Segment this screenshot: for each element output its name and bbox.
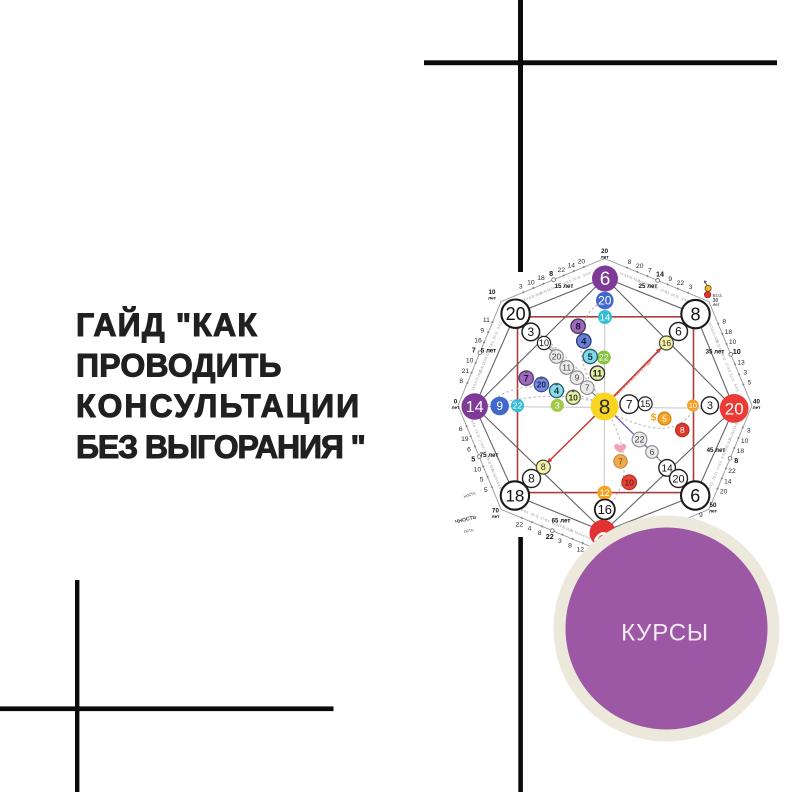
svg-text:22-11: 22-11 — [712, 471, 719, 480]
svg-text:ЧНОСТЬ: ЧНОСТЬ — [454, 514, 477, 525]
svg-text:10: 10 — [741, 438, 749, 445]
svg-text:50: 50 — [710, 502, 717, 509]
svg-text:(5-3) 16,5: (5-3) 16,5 — [478, 358, 487, 373]
svg-text:20: 20 — [636, 263, 644, 270]
svg-text:8: 8 — [599, 396, 611, 419]
svg-text:8: 8 — [734, 456, 738, 465]
svg-text:0: 0 — [454, 399, 458, 406]
svg-text:лет: лет — [709, 510, 718, 515]
svg-text:14: 14 — [724, 478, 732, 485]
svg-text:7: 7 — [585, 383, 590, 393]
svg-text:7: 7 — [524, 373, 529, 384]
svg-text:10: 10 — [733, 347, 741, 356]
svg-text:ость: ость — [464, 528, 475, 535]
svg-text:18: 18 — [505, 486, 524, 505]
svg-text:3: 3 — [747, 428, 751, 435]
svg-text:9-4,5: 9-4,5 — [496, 321, 503, 330]
svg-text:3: 3 — [519, 284, 523, 291]
svg-text:КОНСУЛЬТАЦИИ: КОНСУЛЬТАЦИИ — [76, 388, 361, 424]
svg-text:17-8,5: 17-8,5 — [715, 460, 722, 471]
svg-text:22: 22 — [546, 532, 554, 541]
svg-text:3: 3 — [527, 325, 534, 339]
svg-text:8: 8 — [568, 542, 572, 549]
svg-text:45 лет: 45 лет — [707, 447, 726, 454]
svg-text:20: 20 — [672, 473, 684, 485]
svg-text:11: 11 — [562, 363, 571, 373]
svg-text:лет: лет — [753, 406, 762, 411]
svg-text:6: 6 — [690, 486, 700, 506]
svg-text:17-8,5: 17-8,5 — [660, 288, 671, 295]
svg-text:3: 3 — [558, 538, 562, 545]
svg-text:6: 6 — [459, 426, 463, 433]
svg-text:22-11: 22-11 — [474, 429, 481, 438]
svg-text:3: 3 — [555, 400, 560, 410]
svg-text:9: 9 — [575, 373, 580, 383]
svg-text:22: 22 — [634, 435, 644, 445]
svg-text:20: 20 — [725, 399, 744, 418]
svg-text:ность: ность — [463, 491, 477, 500]
svg-text:18: 18 — [737, 448, 745, 455]
svg-text:6: 6 — [600, 269, 611, 290]
svg-text:ГАЙД "КАК: ГАЙД "КАК — [76, 307, 258, 343]
svg-text:9: 9 — [480, 327, 484, 334]
svg-text:4: 4 — [528, 526, 532, 533]
svg-text:70: 70 — [492, 508, 499, 515]
svg-text:лет: лет — [492, 515, 501, 520]
svg-text:75 лет: 75 лет — [480, 452, 499, 459]
svg-text:11: 11 — [483, 317, 490, 324]
svg-text:9-4,5: 9-4,5 — [733, 383, 740, 392]
svg-text:КУРСЫ: КУРСЫ — [621, 620, 709, 647]
svg-text:14-3,5: 14-3,5 — [580, 533, 591, 540]
svg-text:16: 16 — [474, 337, 482, 344]
svg-text:20: 20 — [506, 304, 526, 324]
svg-text:22-11: 22-11 — [530, 512, 539, 519]
svg-text:8: 8 — [722, 319, 726, 326]
svg-text:6: 6 — [675, 325, 682, 339]
svg-text:14: 14 — [656, 270, 664, 279]
svg-text:12: 12 — [600, 488, 610, 498]
svg-text:22: 22 — [557, 267, 565, 274]
svg-text:8: 8 — [549, 269, 553, 278]
svg-text:16: 16 — [662, 338, 672, 348]
svg-text:8: 8 — [538, 530, 542, 537]
svg-text:10: 10 — [624, 477, 634, 487]
svg-text:16: 16 — [598, 502, 612, 517]
svg-text:14: 14 — [466, 399, 484, 416]
svg-text:17-8,5: 17-8,5 — [540, 516, 551, 523]
svg-text:19: 19 — [461, 436, 469, 443]
svg-text:БЕЗ ВЫГОРАНИЯ ": БЕЗ ВЫГОРАНИЯ " — [76, 429, 365, 465]
svg-text:22-11: 22-11 — [492, 331, 499, 340]
svg-text:10: 10 — [466, 358, 474, 365]
svg-text:35 лет: 35 лет — [706, 349, 725, 356]
svg-text:25 лет: 25 лет — [639, 283, 658, 290]
svg-text:ПРОВОДИТЬ: ПРОВОДИТЬ — [76, 348, 282, 384]
svg-text:лет: лет — [601, 256, 610, 261]
svg-text:10: 10 — [689, 401, 697, 410]
svg-text:8: 8 — [575, 322, 580, 333]
svg-text:20: 20 — [578, 258, 586, 265]
svg-text:3: 3 — [689, 284, 693, 291]
svg-text:9-4,5: 9-4,5 — [583, 271, 592, 278]
svg-text:8: 8 — [528, 472, 535, 486]
svg-text:20: 20 — [601, 248, 608, 255]
svg-text:7: 7 — [472, 346, 476, 355]
svg-text:20: 20 — [552, 352, 562, 362]
svg-text:18: 18 — [537, 275, 545, 282]
svg-text:10: 10 — [568, 392, 578, 402]
svg-text:18: 18 — [725, 329, 733, 336]
svg-text:11: 11 — [593, 368, 603, 378]
svg-text:22: 22 — [599, 353, 609, 363]
svg-text:22-11: 22-11 — [670, 292, 679, 299]
svg-text:20: 20 — [537, 380, 547, 390]
svg-text:лет: лет — [713, 302, 720, 307]
svg-text:10: 10 — [527, 279, 535, 286]
svg-text:4: 4 — [581, 336, 587, 347]
svg-text:65 лет: 65 лет — [552, 518, 571, 525]
svg-text:6: 6 — [467, 446, 471, 453]
svg-text:22-11: 22-11 — [729, 373, 736, 382]
svg-text:5: 5 — [588, 352, 594, 363]
svg-text:5: 5 — [480, 477, 484, 484]
svg-text:(5-3) 16,5: (5-3) 16,5 — [558, 523, 573, 532]
svg-text:8: 8 — [459, 378, 463, 385]
svg-text:22-11: 22-11 — [572, 275, 581, 282]
svg-text:7: 7 — [648, 267, 652, 274]
svg-text:ЛИНИЯ МУЖСКОГО РОДА: ЛИНИЯ МУЖСКОГО РОДА — [613, 358, 653, 398]
svg-text:5: 5 — [484, 487, 488, 494]
svg-text:10: 10 — [729, 339, 737, 346]
svg-text:15 лет: 15 лет — [555, 283, 574, 290]
svg-text:20: 20 — [598, 294, 612, 308]
svg-text:22: 22 — [516, 521, 524, 528]
svg-text:(5-3) 16,5: (5-3) 16,5 — [539, 286, 554, 295]
svg-text:лет: лет — [452, 406, 461, 411]
svg-text:15: 15 — [640, 399, 650, 409]
svg-text:7: 7 — [618, 456, 623, 466]
svg-text:17-8,5: 17-8,5 — [724, 362, 731, 373]
svg-text:22: 22 — [728, 468, 736, 475]
svg-text:5: 5 — [748, 380, 752, 387]
svg-text:5 лет: 5 лет — [481, 348, 496, 355]
svg-text:14-3,5: 14-3,5 — [495, 479, 502, 490]
svg-text:9: 9 — [496, 399, 503, 413]
svg-text:3: 3 — [707, 400, 713, 412]
svg-text:10: 10 — [474, 467, 482, 474]
svg-text:9-4,5: 9-4,5 — [470, 419, 477, 428]
svg-text:22: 22 — [513, 401, 523, 411]
svg-text:6: 6 — [650, 447, 655, 457]
svg-text:13: 13 — [737, 359, 745, 366]
svg-text:3: 3 — [743, 369, 747, 376]
svg-text:20: 20 — [720, 488, 728, 495]
svg-text:8: 8 — [680, 425, 685, 435]
svg-text:8: 8 — [628, 259, 632, 266]
svg-text:17-8,5: 17-8,5 — [478, 439, 485, 450]
svg-text:9: 9 — [699, 512, 703, 519]
svg-text:$: $ — [651, 413, 657, 424]
svg-text:9: 9 — [668, 276, 672, 283]
svg-text:22: 22 — [677, 280, 685, 287]
svg-text:5: 5 — [471, 455, 475, 464]
svg-text:21: 21 — [462, 368, 470, 375]
svg-text:8: 8 — [690, 304, 700, 324]
svg-text:лет: лет — [488, 297, 497, 302]
svg-text:14: 14 — [568, 263, 576, 270]
svg-text:40: 40 — [753, 399, 760, 406]
svg-text:10: 10 — [539, 338, 549, 348]
svg-text:7: 7 — [626, 397, 633, 411]
svg-text:4: 4 — [554, 386, 560, 397]
svg-text:14: 14 — [600, 312, 611, 323]
svg-text:10: 10 — [489, 289, 496, 296]
svg-text:5: 5 — [662, 414, 667, 424]
svg-text:8: 8 — [541, 462, 546, 472]
